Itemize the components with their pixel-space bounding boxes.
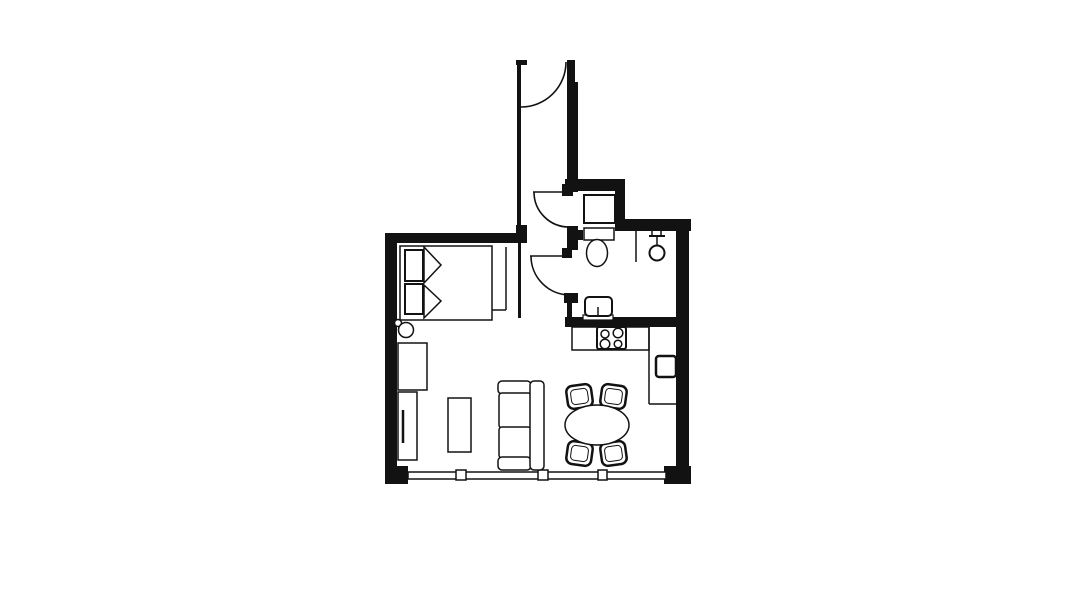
sofa-armrest-top — [498, 381, 531, 394]
coffee-table — [448, 398, 471, 452]
wall-door-upper-jamb — [562, 184, 573, 196]
shower-head — [650, 246, 665, 261]
stove-burner-3 — [600, 339, 610, 349]
wall-toilet-stub — [573, 230, 583, 240]
washing-machine — [584, 195, 615, 223]
stove-burner-4 — [614, 340, 622, 348]
wall-bathroom-right-stub — [615, 179, 625, 225]
wall-kitchen — [565, 317, 676, 327]
dining-chair-top-left-inner — [570, 388, 589, 405]
window-mullion-2 — [538, 470, 548, 480]
wall-corridor-right-upper — [567, 60, 575, 84]
wall-corner-bottom-left — [385, 466, 408, 484]
wall-corridor-left-thin — [517, 64, 521, 225]
window-mullion-3 — [598, 470, 607, 480]
window-mullion-1 — [456, 470, 466, 480]
wall-top-right — [615, 219, 691, 231]
sofa-armrest-bottom — [498, 457, 531, 470]
wall-top-left — [385, 233, 521, 243]
window-band — [408, 472, 666, 479]
entry-door-swing — [521, 62, 566, 107]
bed-pillow-top — [405, 250, 423, 281]
floor-lamp-large-circle — [399, 323, 414, 338]
wall-right — [676, 219, 689, 484]
wall-hall-left-lower — [518, 243, 521, 318]
wall-entry-stub — [516, 60, 527, 65]
floor-plan-page — [0, 0, 1092, 614]
floor-plan — [0, 0, 1092, 614]
dining-table — [565, 405, 629, 445]
sofa-backrest — [530, 381, 544, 470]
wall-corridor-right — [567, 82, 578, 192]
dining-chair-top-right-inner — [604, 388, 623, 405]
dining-chair-bottom-left-inner — [570, 445, 589, 462]
sofa-cushion-top — [499, 393, 531, 428]
bathroom-door-lower-swing — [531, 256, 570, 295]
tv-board — [398, 392, 417, 460]
toilet-cistern — [584, 228, 614, 240]
bathroom-door-upper-swing — [534, 192, 569, 227]
stove-burner-1 — [601, 330, 609, 338]
wall-hall-stub — [516, 225, 527, 243]
wardrobe — [398, 343, 427, 390]
floor-plan-canvas — [0, 0, 1092, 614]
toilet-bowl — [587, 240, 608, 267]
stove-burner-2 — [613, 328, 623, 338]
bed-pillow-bottom — [405, 284, 423, 314]
dining-chair-bottom-right-inner — [604, 445, 623, 462]
wall-left — [385, 233, 397, 472]
fridge — [656, 356, 676, 377]
sofa-cushion-bottom — [499, 427, 531, 458]
